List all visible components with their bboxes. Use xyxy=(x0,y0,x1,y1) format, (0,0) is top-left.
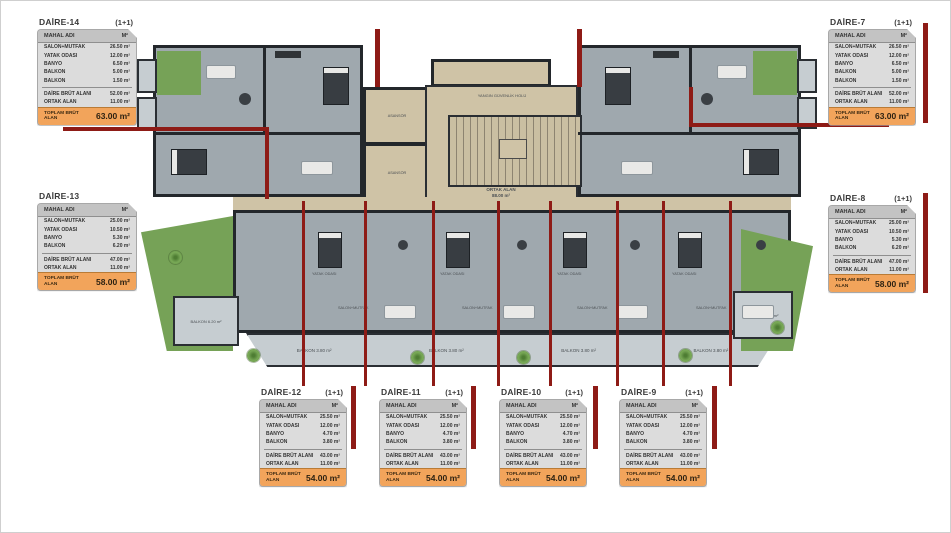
room-label: SALON+MUTFAK xyxy=(577,306,608,310)
total-row: TOPLAM BRÜT ALAN 58.00 m² xyxy=(829,274,915,292)
wardrobe xyxy=(275,51,301,58)
round-table xyxy=(630,240,640,250)
ortak-value: 11.00 m² xyxy=(560,461,580,467)
ortak-value: 11.00 m² xyxy=(440,461,460,467)
divider xyxy=(624,449,702,450)
brut-label: DAİRE BRÜT ALANI xyxy=(44,257,91,263)
room-row: YATAK ODASI10.50 m² xyxy=(38,225,136,233)
side-balcony-left: BALKON 6.20 m² xyxy=(173,296,239,346)
bottom-unit: YATAK ODASI SALON+MUTFAK xyxy=(551,210,660,333)
unit-card-daire-7: DAİRE-7 (1+1) MAHAL ADI M² SALON+MUTFAK2… xyxy=(828,17,916,126)
room-row: SALON+MUTFAK25.00 m² xyxy=(38,217,136,225)
room-rows: SALON+MUTFAK26.50 m²YATAK ODASI12.00 m²B… xyxy=(38,43,136,85)
room-row: BANYO4.70 m² xyxy=(380,430,466,438)
unit-card-title: DAİRE-13 xyxy=(37,191,137,203)
col-mahal-adi: MAHAL ADI xyxy=(386,403,417,409)
ortak-label: ORTAK ALAN xyxy=(506,461,539,467)
bed xyxy=(323,67,349,105)
room-row: YATAK ODASI12.00 m² xyxy=(829,51,915,59)
total-row: TOPLAM BRÜT ALAN 63.00 m² xyxy=(829,107,915,125)
unit-name: DAİRE-12 xyxy=(261,387,301,397)
room-row: YATAK ODASI10.50 m² xyxy=(829,227,915,235)
brut-value: 43.00 m² xyxy=(440,453,460,459)
room-rows: SALON+MUTFAK25.50 m²YATAK ODASI12.00 m²B… xyxy=(500,413,586,447)
elevator-label: ASANSÖR xyxy=(388,114,407,118)
room-row: SALON+MUTFAK25.50 m² xyxy=(260,413,346,421)
table-header: MAHAL ADI M² xyxy=(380,400,466,413)
room-row: SALON+MUTFAK25.50 m² xyxy=(620,413,706,421)
unit-boundary-line xyxy=(577,29,582,87)
unit-boundary-line xyxy=(729,201,732,386)
sofa xyxy=(621,161,653,175)
room-rows: SALON+MUTFAK25.50 m²YATAK ODASI12.00 m²B… xyxy=(380,413,466,447)
col-mahal-adi: MAHAL ADI xyxy=(44,207,75,213)
unit-boundary-line xyxy=(923,23,928,123)
brut-value: 43.00 m² xyxy=(680,453,700,459)
total-row: TOPLAM BRÜT ALAN 63.00 m² xyxy=(38,107,136,125)
total-value: 58.00 m² xyxy=(875,279,909,289)
ortak-label: ORTAK ALAN xyxy=(386,461,419,467)
plant-icon xyxy=(679,349,692,362)
brut-value: 52.00 m² xyxy=(110,91,130,97)
room-label: YATAK ODASI xyxy=(672,272,696,276)
unit-leader-bar xyxy=(471,386,476,449)
bottom-balcony-band: BALKON 3.80 m² BALKON 3.80 m² BALKON 3.8… xyxy=(246,333,779,367)
unit-boundary-line xyxy=(616,201,619,386)
bottom-unit: YATAK ODASI SALON+MUTFAK xyxy=(664,210,788,333)
col-m2: M² xyxy=(452,403,458,409)
plant-icon xyxy=(247,349,260,362)
brut-value: 43.00 m² xyxy=(320,453,340,459)
room-row: BANYO5.30 m² xyxy=(829,236,915,244)
total-label: TOPLAM BRÜT ALAN xyxy=(626,472,664,483)
room-rows: SALON+MUTFAK26.50 m²YATAK ODASI12.00 m²B… xyxy=(829,43,915,85)
room-rows: SALON+MUTFAK25.50 m²YATAK ODASI12.00 m²B… xyxy=(620,413,706,447)
brut-value: 52.00 m² xyxy=(889,91,909,97)
brut-value: 43.00 m² xyxy=(560,453,580,459)
room-row: BANYO6.50 m² xyxy=(829,60,915,68)
round-table xyxy=(398,240,408,250)
brut-label: DAİRE BRÜT ALANI xyxy=(506,453,553,459)
room-row: BANYO6.50 m² xyxy=(38,60,136,68)
ortak-label: ORTAK ALAN xyxy=(266,461,299,467)
unit-info-table: MAHAL ADI M² SALON+MUTFAK26.50 m²YATAK O… xyxy=(828,29,916,126)
room-row: YATAK ODASI12.00 m² xyxy=(380,421,466,429)
total-row: TOPLAM BRÜT ALAN 58.00 m² xyxy=(38,272,136,290)
sofa xyxy=(384,305,416,319)
ortak-label: ORTAK ALAN xyxy=(835,99,868,105)
elevator-room: ASANSÖR xyxy=(363,87,431,145)
room-row: YATAK ODASI12.00 m² xyxy=(260,421,346,429)
unit-info-table: MAHAL ADI M² SALON+MUTFAK26.50 m²YATAK O… xyxy=(37,29,137,126)
brut-value: 47.00 m² xyxy=(110,257,130,263)
col-m2: M² xyxy=(332,403,338,409)
sofa xyxy=(717,65,747,79)
balcony-label: BALKON 3.80 m² xyxy=(693,348,728,353)
total-label: TOPLAM BRÜT ALAN xyxy=(386,472,424,483)
unit-info-table: MAHAL ADI M² SALON+MUTFAK25.00 m²YATAK O… xyxy=(37,203,137,291)
brut-label: DAİRE BRÜT ALANI xyxy=(835,259,882,265)
unit-card-daire-10: DAİRE-10 (1+1) MAHAL ADI M² SALON+MUTFAK… xyxy=(499,387,587,487)
table-header: MAHAL ADI M² xyxy=(260,400,346,413)
common-area-label: ORTAK ALAN xyxy=(446,187,556,192)
col-mahal-adi: MAHAL ADI xyxy=(835,33,866,39)
unit-info-table: MAHAL ADI M² SALON+MUTFAK25.50 m²YATAK O… xyxy=(379,399,467,487)
col-mahal-adi: MAHAL ADI xyxy=(266,403,297,409)
unit-boundary-line xyxy=(923,193,928,293)
unit-leader-bar xyxy=(351,386,356,449)
brut-label: DAİRE BRÜT ALANI xyxy=(835,91,882,97)
unit-plan-type: (1+1) xyxy=(894,18,912,27)
unit-boundary-line xyxy=(689,87,693,125)
bed xyxy=(743,149,779,175)
col-m2: M² xyxy=(122,207,128,213)
room-label: YATAK ODASI xyxy=(557,272,581,276)
room-label: YATAK ODASI xyxy=(440,272,464,276)
unit-card-title: DAİRE-12 (1+1) xyxy=(259,387,347,399)
room-row: BANYO4.70 m² xyxy=(260,430,346,438)
room-row: SALON+MUTFAK26.50 m² xyxy=(38,43,136,51)
unit-info-table: MAHAL ADI M² SALON+MUTFAK25.00 m²YATAK O… xyxy=(828,205,916,293)
room-row: BALKON1.50 m² xyxy=(38,77,136,85)
total-value: 54.00 m² xyxy=(546,473,580,483)
unit-name: DAİRE-7 xyxy=(830,17,865,27)
total-row: TOPLAM BRÜT ALAN 54.00 m² xyxy=(500,468,586,486)
total-label: TOPLAM BRÜT ALAN xyxy=(266,472,304,483)
bottom-unit: YATAK ODASI SALON+MUTFAK xyxy=(304,210,430,333)
total-label: TOPLAM BRÜT ALAN xyxy=(506,472,544,483)
unit-boundary-line xyxy=(497,201,500,386)
room-row: BALKON3.80 m² xyxy=(500,438,586,446)
total-value: 58.00 m² xyxy=(96,277,130,287)
unit-boundary-line xyxy=(265,127,269,199)
room-row: BANYO4.70 m² xyxy=(620,430,706,438)
total-value: 63.00 m² xyxy=(875,111,909,121)
core-top-room xyxy=(431,59,551,87)
brut-label: DAİRE BRÜT ALANI xyxy=(266,453,313,459)
col-m2: M² xyxy=(901,209,907,215)
brut-value: 47.00 m² xyxy=(889,259,909,265)
room-row: BANYO4.70 m² xyxy=(500,430,586,438)
brut-label: DAİRE BRÜT ALANI xyxy=(44,91,91,97)
ortak-value: 11.00 m² xyxy=(889,99,909,105)
sofa xyxy=(742,305,774,319)
unit-name: DAİRE-14 xyxy=(39,17,79,27)
table-header: MAHAL ADI M² xyxy=(500,400,586,413)
room-label: YATAK ODASI xyxy=(312,272,336,276)
unit-boundary-line xyxy=(364,201,367,386)
plant-icon xyxy=(411,351,424,364)
unit-card-title: DAİRE-11 (1+1) xyxy=(379,387,467,399)
col-m2: M² xyxy=(122,33,128,39)
total-label: TOPLAM BRÜT ALAN xyxy=(44,111,82,122)
room-row: SALON+MUTFAK25.00 m² xyxy=(829,219,915,227)
unit-plan-type: (1+1) xyxy=(115,18,133,27)
unit-name: DAİRE-13 xyxy=(39,191,79,201)
room-rows: SALON+MUTFAK25.00 m²YATAK ODASI10.50 m²B… xyxy=(829,219,915,253)
round-table xyxy=(701,93,713,105)
table-header: MAHAL ADI M² xyxy=(38,204,136,217)
unit-info-table: MAHAL ADI M² SALON+MUTFAK25.50 m²YATAK O… xyxy=(619,399,707,487)
balcony-label: BALKON 6.20 m² xyxy=(191,319,222,324)
total-value: 54.00 m² xyxy=(426,473,460,483)
room-row: SALON+MUTFAK25.50 m² xyxy=(380,413,466,421)
side-balcony xyxy=(797,59,817,93)
room-row: YATAK ODASI12.00 m² xyxy=(620,421,706,429)
room-row: BALKON1.50 m² xyxy=(829,77,915,85)
sofa xyxy=(301,161,333,175)
unit-boundary-line xyxy=(662,201,665,386)
unit-name: DAİRE-10 xyxy=(501,387,541,397)
unit-plan-type: (1+1) xyxy=(894,194,912,203)
room-row: BALKON3.80 m² xyxy=(380,438,466,446)
room-row: BALKON3.80 m² xyxy=(620,438,706,446)
round-table xyxy=(239,93,251,105)
ortak-value: 11.00 m² xyxy=(680,461,700,467)
stair-landing xyxy=(499,139,527,159)
col-m2: M² xyxy=(572,403,578,409)
col-m2: M² xyxy=(901,33,907,39)
total-row: TOPLAM BRÜT ALAN 54.00 m² xyxy=(380,468,466,486)
room-row: BALKON6.20 m² xyxy=(829,244,915,252)
unit-plan-type: (1+1) xyxy=(565,388,583,397)
table-header: MAHAL ADI M² xyxy=(38,30,136,43)
unit-leader-bar xyxy=(712,386,717,449)
bed xyxy=(171,149,207,175)
bed xyxy=(563,232,587,268)
divider xyxy=(264,449,342,450)
side-balcony xyxy=(137,59,157,93)
interior-wall xyxy=(263,45,266,135)
table-header: MAHAL ADI M² xyxy=(829,30,915,43)
room-row: BALKON6.20 m² xyxy=(38,242,136,250)
unit-name: DAİRE-9 xyxy=(621,387,656,397)
brut-label: DAİRE BRÜT ALANI xyxy=(386,453,433,459)
room-row: BALKON3.80 m² xyxy=(260,438,346,446)
ortak-label: ORTAK ALAN xyxy=(835,267,868,273)
room-row: YATAK ODASI12.00 m² xyxy=(38,51,136,59)
col-mahal-adi: MAHAL ADI xyxy=(506,403,537,409)
garden-patch xyxy=(157,51,201,95)
table-header: MAHAL ADI M² xyxy=(620,400,706,413)
ortak-label: ORTAK ALAN xyxy=(626,461,659,467)
unit-plan-type: (1+1) xyxy=(445,388,463,397)
col-mahal-adi: MAHAL ADI xyxy=(44,33,75,39)
room-row: BANYO5.30 m² xyxy=(38,234,136,242)
room-row: SALON+MUTFAK25.50 m² xyxy=(500,413,586,421)
divider xyxy=(833,87,911,88)
unit-boundary-line xyxy=(63,127,269,131)
unit-card-title: DAİRE-8 (1+1) xyxy=(828,193,916,205)
sofa xyxy=(206,65,236,79)
total-value: 63.00 m² xyxy=(96,111,130,121)
unit-name: DAİRE-8 xyxy=(830,193,865,203)
bottom-unit: YATAK ODASI SALON+MUTFAK xyxy=(434,210,547,333)
balcony-label: BALKON 3.80 m² xyxy=(561,348,596,353)
unit-card-title: DAİRE-9 (1+1) xyxy=(619,387,707,399)
garden-patch xyxy=(753,51,797,95)
brut-label: DAİRE BRÜT ALANI xyxy=(626,453,673,459)
unit-info-table: MAHAL ADI M² SALON+MUTFAK25.50 m²YATAK O… xyxy=(259,399,347,487)
total-row: TOPLAM BRÜT ALAN 54.00 m² xyxy=(260,468,346,486)
ortak-label: ORTAK ALAN xyxy=(44,265,77,271)
bed xyxy=(678,232,702,268)
col-mahal-adi: MAHAL ADI xyxy=(626,403,657,409)
room-row: SALON+MUTFAK26.50 m² xyxy=(829,43,915,51)
room-rows: SALON+MUTFAK25.50 m²YATAK ODASI12.00 m²B… xyxy=(260,413,346,447)
unit-leader-bar xyxy=(593,386,598,449)
unit-boundary-line xyxy=(375,29,380,87)
interior-wall xyxy=(153,132,363,135)
unit-name: DAİRE-11 xyxy=(381,387,421,397)
round-table xyxy=(517,240,527,250)
unit-card-daire-14: DAİRE-14 (1+1) MAHAL ADI M² SALON+MUTFAK… xyxy=(37,17,137,126)
plant-icon xyxy=(517,351,530,364)
divider xyxy=(42,253,132,254)
ortak-value: 11.00 m² xyxy=(320,461,340,467)
unit-boundary-line xyxy=(549,201,552,386)
unit-card-title: DAİRE-7 (1+1) xyxy=(828,17,916,29)
unit-info-table: MAHAL ADI M² SALON+MUTFAK25.50 m²YATAK O… xyxy=(499,399,587,487)
unit-card-daire-9: DAİRE-9 (1+1) MAHAL ADI M² SALON+MUTFAK2… xyxy=(619,387,707,487)
divider xyxy=(504,449,582,450)
unit-card-daire-8: DAİRE-8 (1+1) MAHAL ADI M² SALON+MUTFAK2… xyxy=(828,193,916,293)
unit-boundary-line xyxy=(432,201,435,386)
table-header: MAHAL ADI M² xyxy=(829,206,915,219)
fire-hall-label: YANGIN GÜVENLİK HOLÜ xyxy=(439,93,565,98)
floor-plan-page: ASANSÖR ASANSÖR YANGIN GÜVENLİK HOLÜ ORT… xyxy=(0,0,951,533)
unit-card-title: DAİRE-14 (1+1) xyxy=(37,17,137,29)
room-row: YATAK ODASI12.00 m² xyxy=(500,421,586,429)
sofa xyxy=(503,305,535,319)
divider xyxy=(384,449,462,450)
unit-boundary-line xyxy=(302,201,305,386)
sofa xyxy=(616,305,648,319)
room-row: BALKON5.00 m² xyxy=(829,68,915,76)
ortak-value: 11.00 m² xyxy=(889,267,909,273)
divider xyxy=(42,87,132,88)
total-label: TOPLAM BRÜT ALAN xyxy=(44,276,82,287)
bed xyxy=(446,232,470,268)
corridor-band xyxy=(233,197,791,211)
interior-wall xyxy=(578,132,801,135)
unit-plan-type: (1+1) xyxy=(685,388,703,397)
total-label: TOPLAM BRÜT ALAN xyxy=(835,278,873,289)
room-row: BALKON5.00 m² xyxy=(38,68,136,76)
unit-plan-type: (1+1) xyxy=(325,388,343,397)
elevator-label: ASANSÖR xyxy=(388,171,407,175)
wardrobe xyxy=(653,51,679,58)
plant-icon xyxy=(169,251,182,264)
bed xyxy=(605,67,631,105)
room-label: SALON+MUTFAK xyxy=(696,306,727,310)
round-table xyxy=(756,240,766,250)
total-label: TOPLAM BRÜT ALAN xyxy=(835,111,873,122)
ortak-label: ORTAK ALAN xyxy=(44,99,77,105)
unit-card-daire-13: DAİRE-13 MAHAL ADI M² SALON+MUTFAK25.00 … xyxy=(37,191,137,291)
unit-card-daire-11: DAİRE-11 (1+1) MAHAL ADI M² SALON+MUTFAK… xyxy=(379,387,467,487)
total-value: 54.00 m² xyxy=(666,473,700,483)
unit-card-daire-12: DAİRE-12 (1+1) MAHAL ADI M² SALON+MUTFAK… xyxy=(259,387,347,487)
unit-card-title: DAİRE-10 (1+1) xyxy=(499,387,587,399)
ortak-value: 11.00 m² xyxy=(110,265,130,271)
total-row: TOPLAM BRÜT ALAN 54.00 m² xyxy=(620,468,706,486)
room-label: SALON+MUTFAK xyxy=(462,306,493,310)
total-value: 54.00 m² xyxy=(306,473,340,483)
room-rows: SALON+MUTFAK25.00 m²YATAK ODASI10.50 m²B… xyxy=(38,217,136,251)
col-m2: M² xyxy=(692,403,698,409)
bed xyxy=(318,232,342,268)
col-mahal-adi: MAHAL ADI xyxy=(835,209,866,215)
side-balcony xyxy=(137,97,157,129)
divider xyxy=(833,255,911,256)
elevator-room: ASANSÖR xyxy=(363,143,431,203)
ortak-value: 11.00 m² xyxy=(110,99,130,105)
